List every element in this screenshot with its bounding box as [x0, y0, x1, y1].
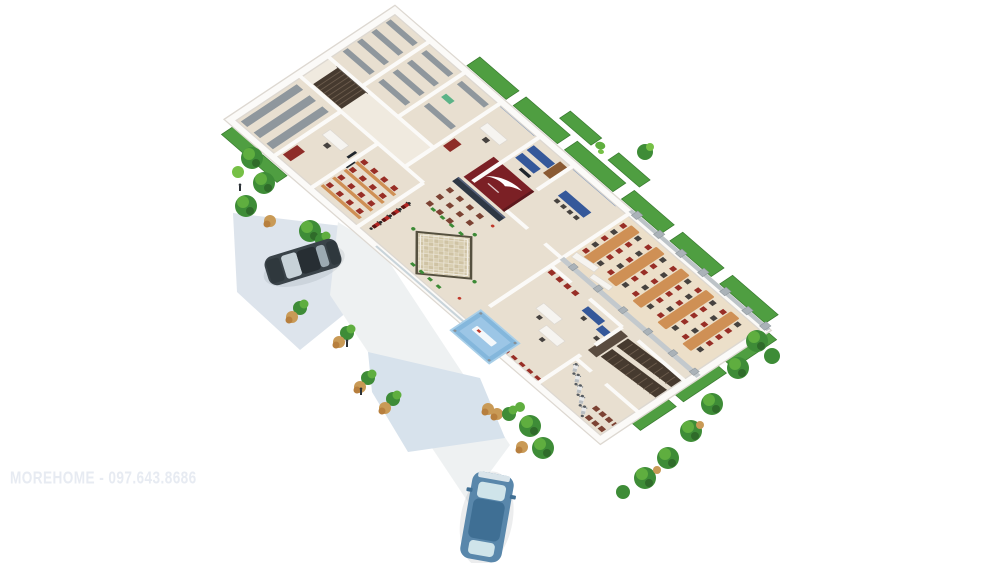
watermark-text: MOREHOME - 097.643.8686	[10, 469, 197, 489]
person-figure	[360, 388, 363, 396]
person-figure	[346, 340, 349, 348]
person-figure	[239, 184, 242, 192]
floorplan-render: MOREHOME - 097.643.8686	[0, 0, 1000, 563]
